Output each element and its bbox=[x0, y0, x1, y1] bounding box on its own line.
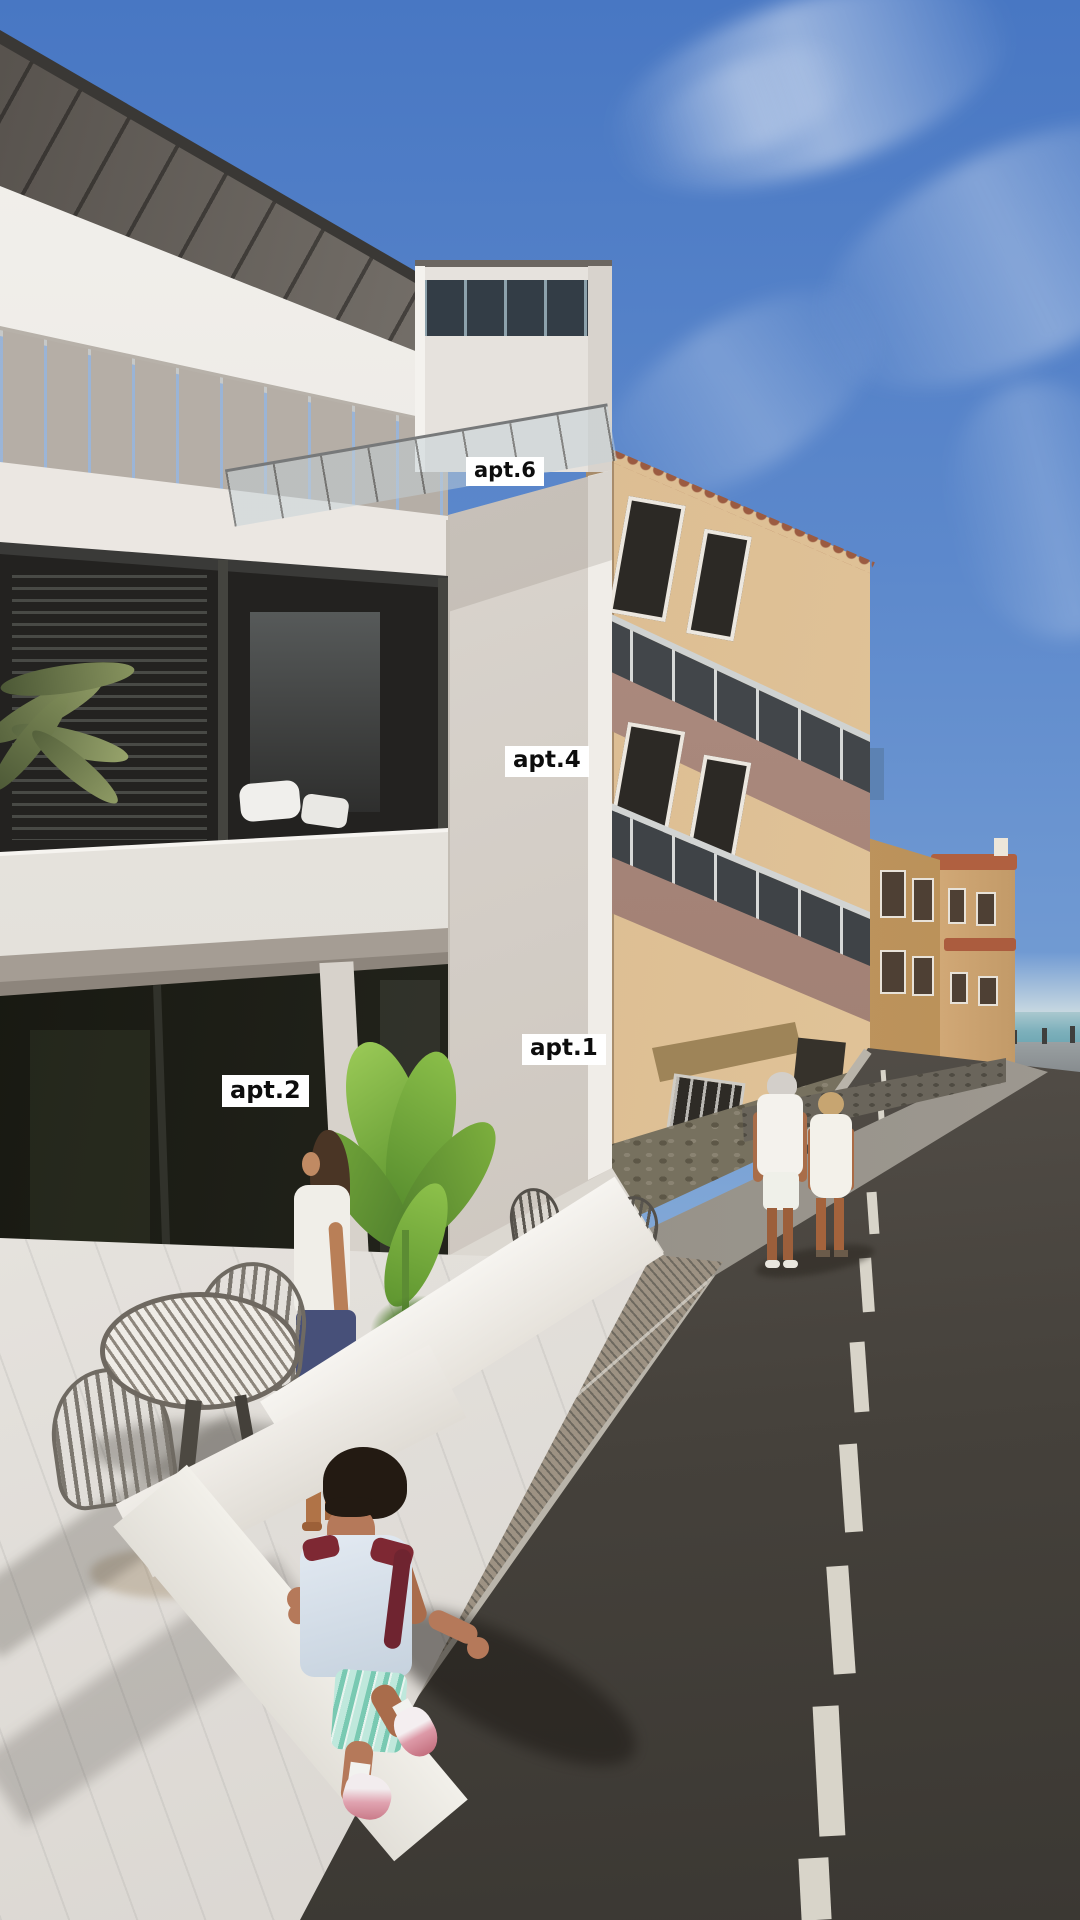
running-boy bbox=[285, 1445, 435, 1825]
terracotta-roof-strip bbox=[931, 854, 1017, 870]
pedestrian-woman bbox=[808, 1092, 854, 1264]
label-apt2[interactable]: apt.2 bbox=[222, 1075, 309, 1107]
hair bbox=[818, 1092, 844, 1116]
fringe bbox=[325, 1497, 377, 1517]
dress bbox=[810, 1114, 852, 1198]
penthouse-roofline bbox=[415, 260, 612, 267]
leg bbox=[783, 1208, 793, 1260]
patterned-table-top bbox=[100, 1292, 300, 1410]
balcony-chair bbox=[238, 779, 301, 822]
sandal bbox=[816, 1250, 830, 1257]
shirt bbox=[757, 1094, 803, 1176]
cloud-streak bbox=[922, 360, 1080, 661]
window bbox=[912, 878, 934, 922]
penthouse-glass-band bbox=[424, 280, 604, 336]
window-mullion bbox=[438, 578, 448, 836]
window bbox=[978, 976, 998, 1006]
pedestrian-man bbox=[753, 1072, 807, 1268]
shorts bbox=[763, 1172, 799, 1210]
label-apt1[interactable]: apt.1 bbox=[522, 1034, 606, 1065]
sandal bbox=[834, 1250, 848, 1257]
window bbox=[948, 888, 966, 924]
hand-fist bbox=[467, 1637, 489, 1659]
seafront-wall-post bbox=[1070, 1026, 1075, 1043]
window bbox=[880, 870, 906, 918]
leg bbox=[816, 1198, 826, 1250]
road-dash bbox=[798, 1857, 831, 1920]
chimney bbox=[994, 838, 1008, 856]
seafront-wall-post bbox=[1042, 1028, 1047, 1044]
distant-building-terracotta bbox=[935, 858, 1015, 1070]
label-apt4[interactable]: apt.4 bbox=[505, 746, 589, 777]
shoe bbox=[783, 1260, 798, 1268]
face bbox=[302, 1152, 320, 1176]
leg bbox=[834, 1198, 844, 1250]
window bbox=[912, 956, 934, 996]
window bbox=[976, 892, 996, 926]
street-render-scene: apt.6 apt.4 apt.1 apt.2 bbox=[0, 0, 1080, 1920]
leg bbox=[767, 1208, 777, 1260]
shoe bbox=[765, 1260, 780, 1268]
window bbox=[950, 972, 968, 1004]
palm-plant bbox=[0, 635, 175, 835]
terracotta-roof-strip bbox=[944, 938, 1016, 951]
window-mullion bbox=[218, 560, 228, 848]
window bbox=[880, 950, 906, 994]
label-apt6[interactable]: apt.6 bbox=[466, 457, 544, 486]
balcony-table bbox=[300, 793, 350, 829]
